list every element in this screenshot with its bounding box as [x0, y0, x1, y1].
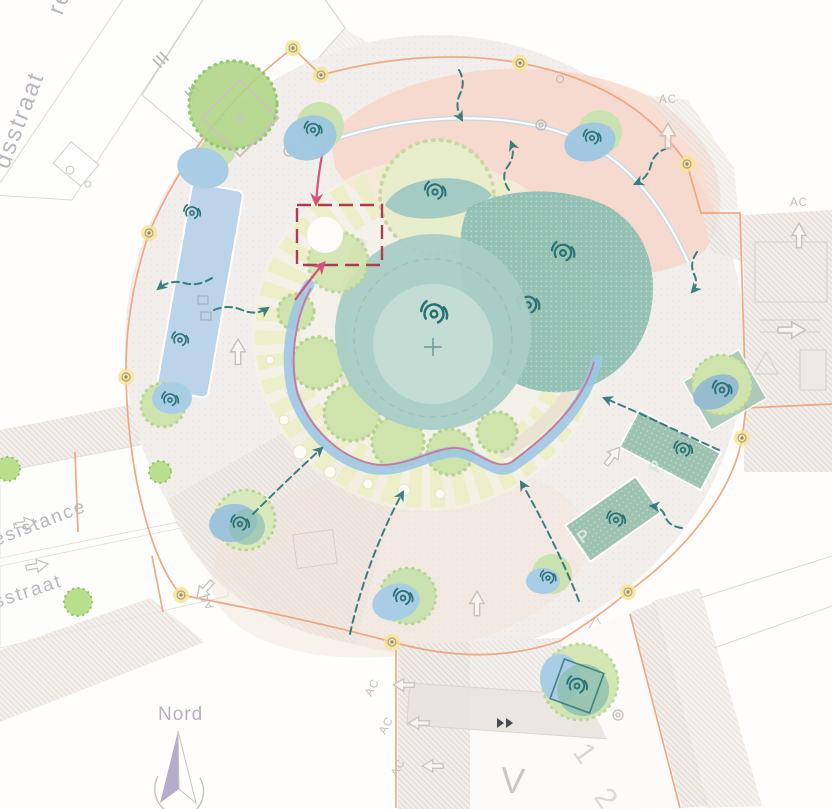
ac-label-right: AC: [790, 197, 808, 209]
ac-label-top: AC: [659, 94, 677, 106]
compass-label: Nord: [158, 704, 203, 725]
masterplan-canvas: P P: [0, 0, 832, 809]
road-marking-v: V: [499, 759, 526, 802]
